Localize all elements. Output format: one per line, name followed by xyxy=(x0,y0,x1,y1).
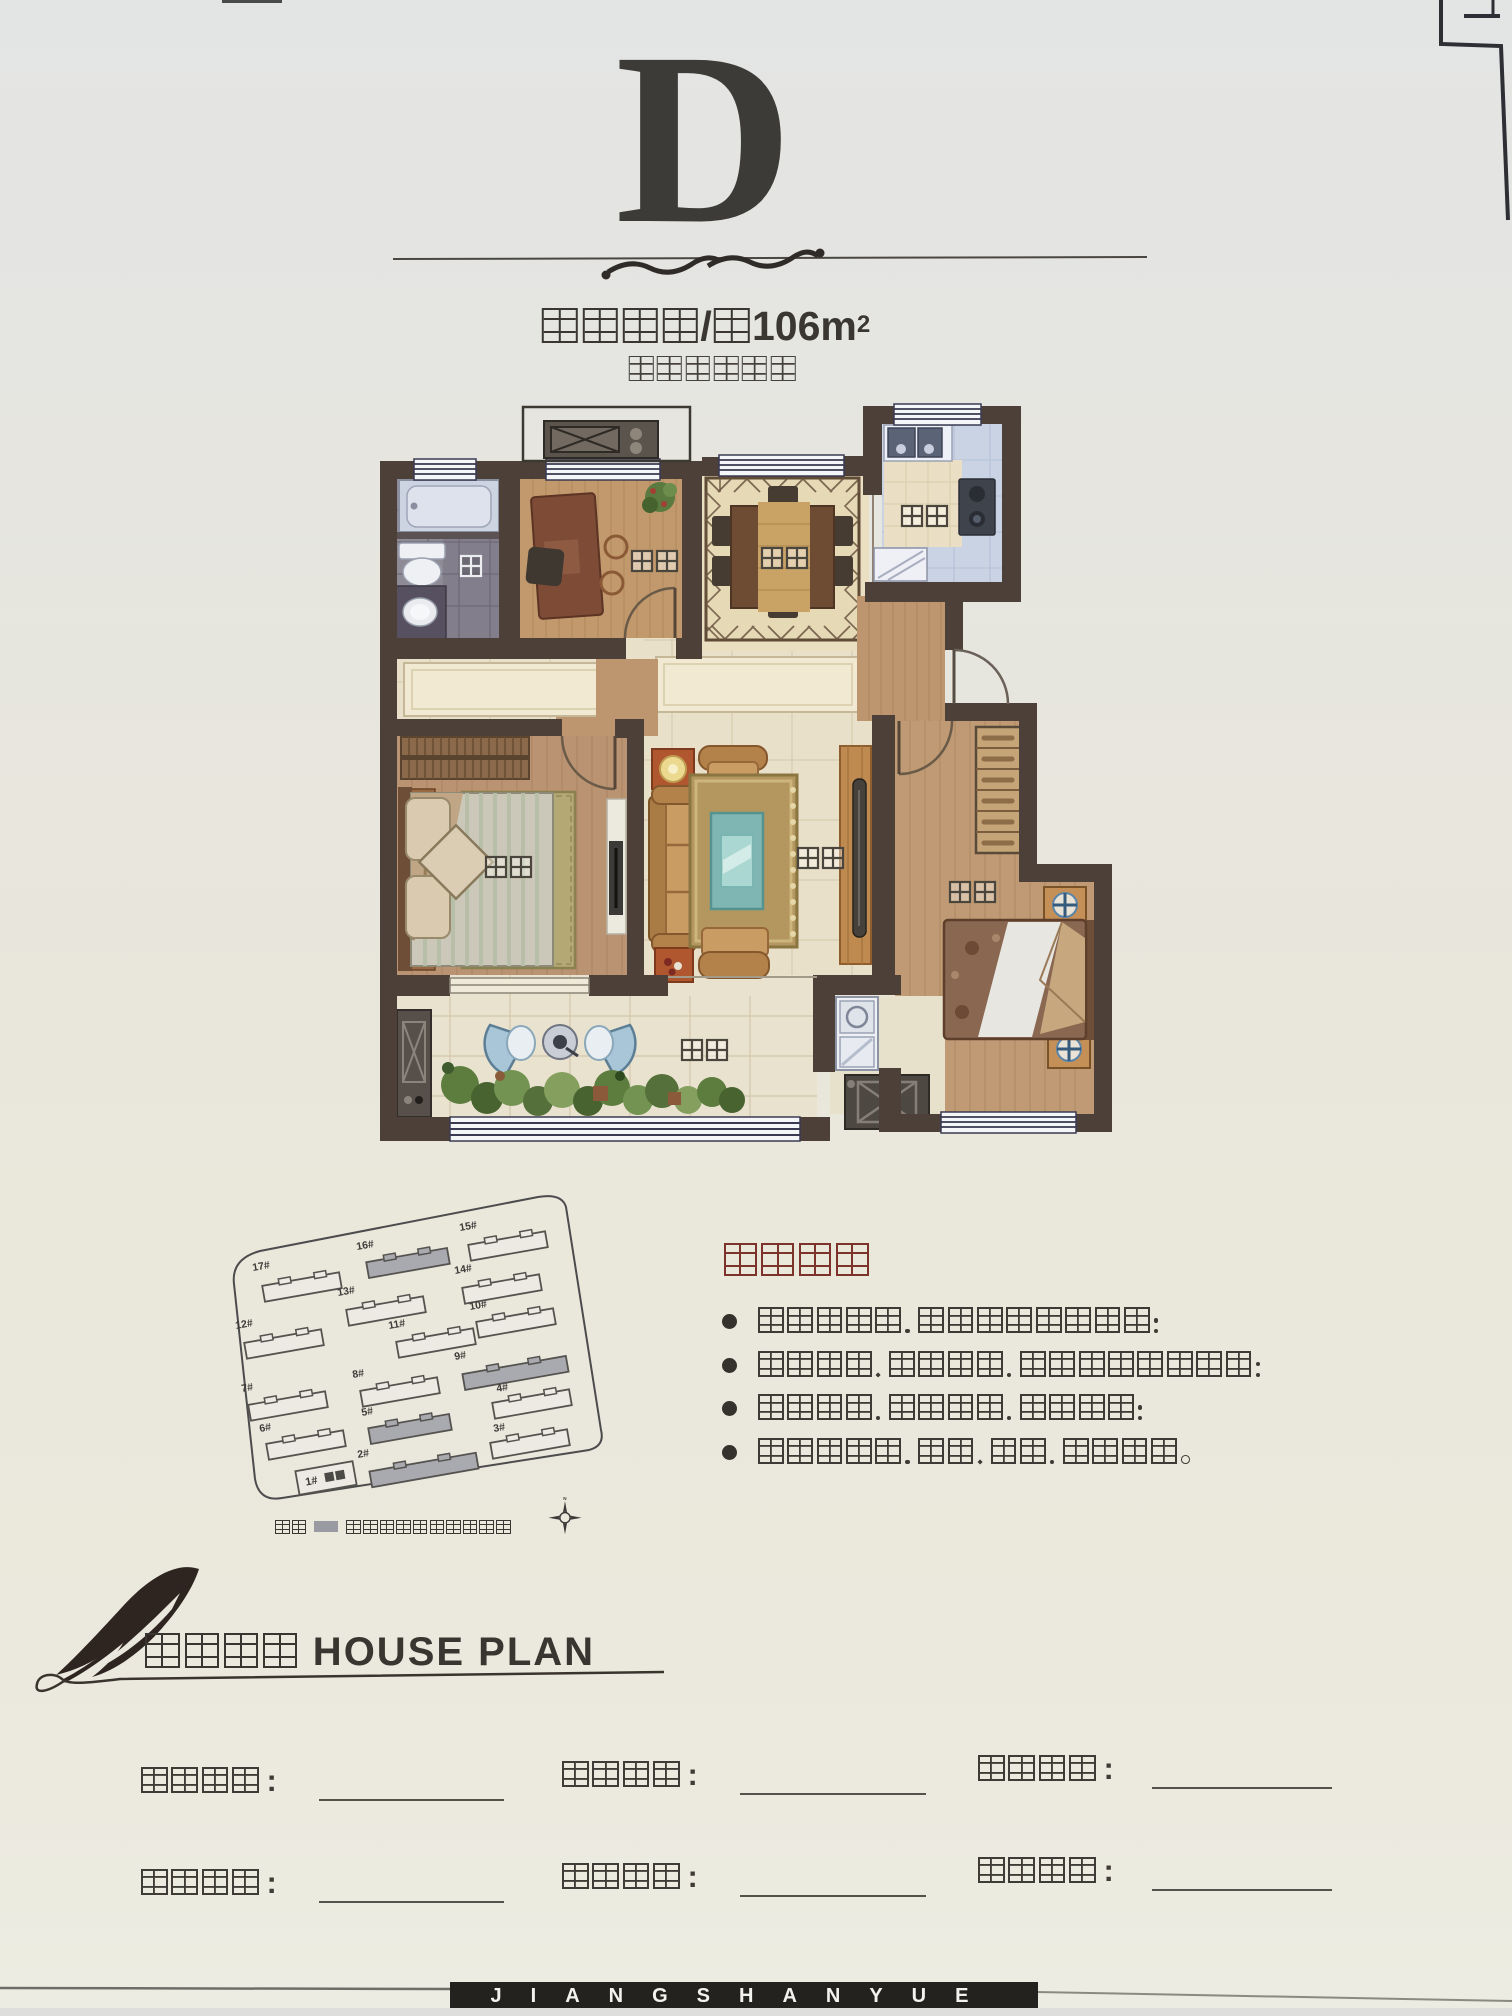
svg-text:2#: 2# xyxy=(356,1447,370,1461)
svg-text:6#: 6# xyxy=(258,1421,272,1435)
svg-text:N: N xyxy=(563,1496,566,1501)
svg-text:14#: 14# xyxy=(453,1262,472,1277)
svg-text:4#: 4# xyxy=(495,1381,509,1395)
svg-text:JIANGSHANYUE: JIANGSHANYUE xyxy=(491,1985,998,2007)
svg-text:15#: 15# xyxy=(458,1219,477,1234)
svg-text:7#: 7# xyxy=(240,1381,254,1395)
svg-text:12#: 12# xyxy=(234,1317,253,1332)
svg-text:13#: 13# xyxy=(336,1284,355,1299)
svg-text:11#: 11# xyxy=(387,1317,406,1332)
svg-text:17#: 17# xyxy=(251,1259,270,1274)
svg-text:16#: 16# xyxy=(355,1238,374,1253)
svg-text:1#: 1# xyxy=(304,1475,318,1489)
svg-text:10#: 10# xyxy=(468,1298,487,1313)
svg-text:5#: 5# xyxy=(360,1405,374,1419)
svg-text:8#: 8# xyxy=(351,1367,365,1381)
svg-text:3#: 3# xyxy=(492,1421,506,1435)
svg-text:9#: 9# xyxy=(453,1349,467,1363)
